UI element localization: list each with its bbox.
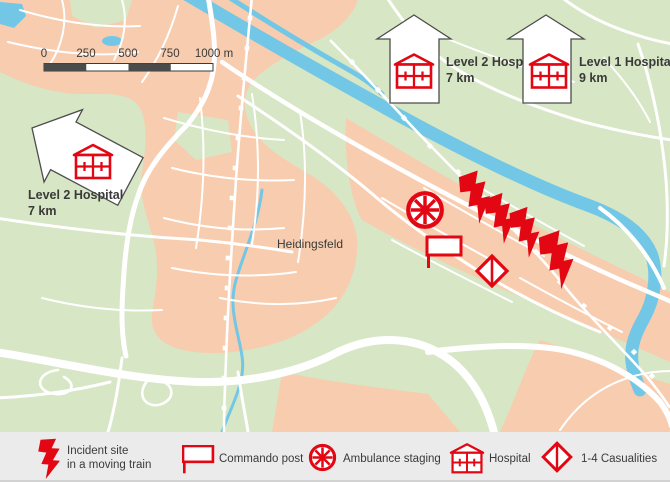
hospital-distance: 7 km bbox=[28, 204, 57, 218]
hospital-legend-icon bbox=[447, 441, 487, 477]
legend-incident-label: Incident site in a moving train bbox=[67, 444, 151, 472]
legend-incident-line2: in a moving train bbox=[67, 458, 151, 472]
legend-commando-label: Commando post bbox=[219, 452, 303, 466]
map-canvas: 0 250 500 750 1000 m Heidingsfeld Level … bbox=[0, 0, 670, 432]
scale-tick-1000m: 1000 m bbox=[195, 48, 233, 60]
town-label: Heidingsfeld bbox=[277, 237, 343, 251]
hospital-name: Level 2 Hospital bbox=[28, 188, 123, 202]
scale-tick-500: 500 bbox=[118, 48, 137, 60]
hospital-distance: 7 km bbox=[446, 71, 475, 85]
legend-casualties-label: 1-4 Casualities bbox=[581, 452, 657, 466]
incident-site-legend-icon bbox=[33, 437, 67, 481]
scale-tick-750: 750 bbox=[160, 48, 179, 60]
casualties-legend-icon bbox=[541, 441, 573, 473]
legend-hospital-label: Hospital bbox=[489, 452, 531, 466]
commando-post-legend-icon bbox=[182, 445, 216, 475]
incident-map-figure: 0 250 500 750 1000 m Heidingsfeld Level … bbox=[0, 0, 670, 482]
scale-tick-250: 250 bbox=[76, 48, 95, 60]
legend-ambulance-label: Ambulance staging bbox=[343, 452, 441, 466]
hospital-name: Level 1 Hospital bbox=[579, 55, 670, 69]
legend-incident-line1: Incident site bbox=[67, 444, 151, 458]
scale-tick-0: 0 bbox=[41, 48, 47, 60]
map-legend: Incident site in a moving train Commando… bbox=[0, 432, 670, 482]
hospital-distance: 9 km bbox=[579, 71, 608, 85]
ambulance-staging-legend-icon bbox=[308, 443, 337, 472]
ambulance-staging-icon bbox=[408, 193, 441, 226]
